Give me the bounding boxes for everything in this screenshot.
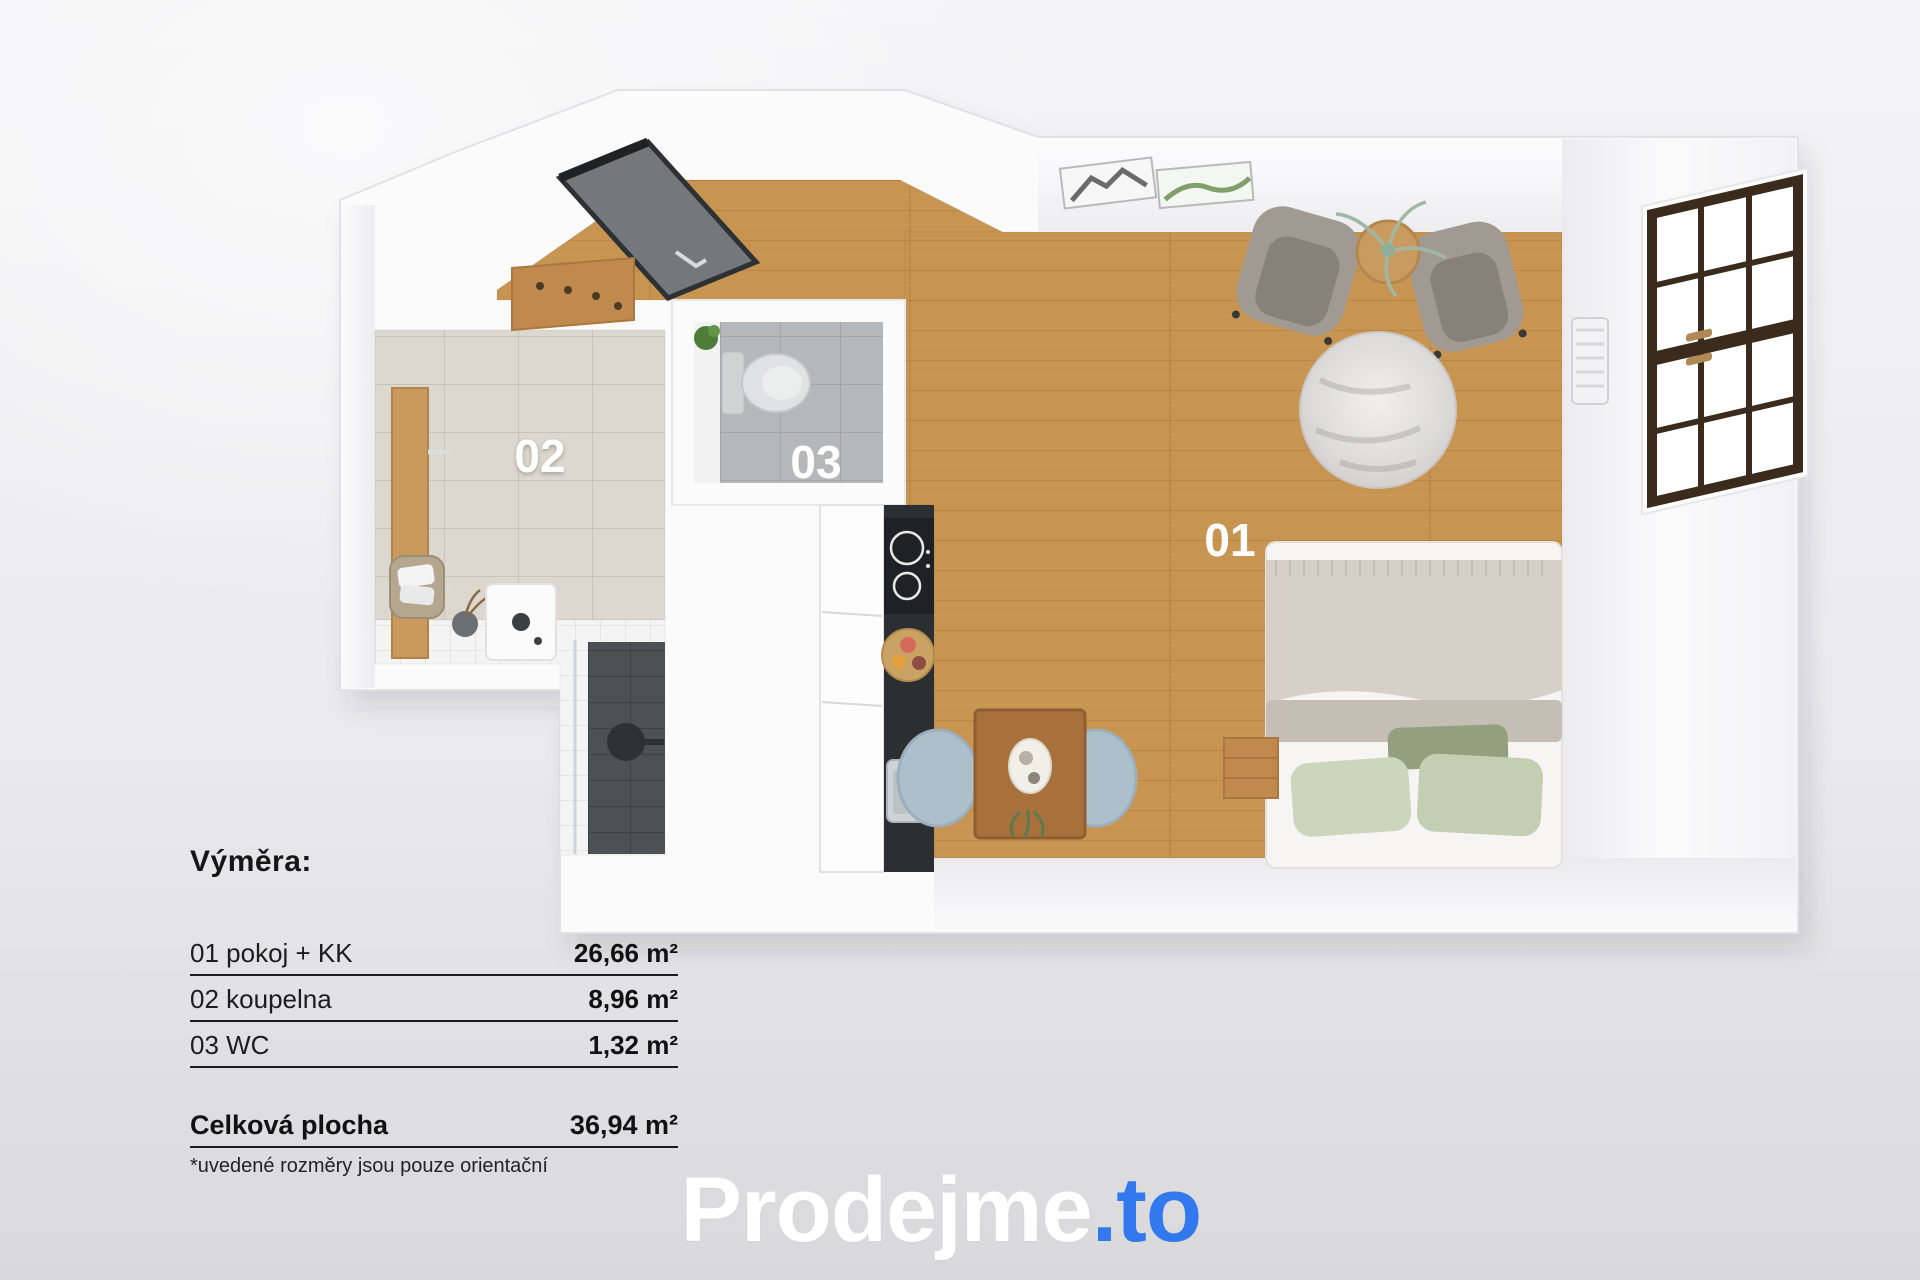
bed-blanket [1266, 560, 1562, 705]
wall-face-left [342, 205, 375, 688]
induction-hob [884, 518, 934, 614]
legend-total-value: 36,94 m² [570, 1110, 678, 1141]
prodejme-to-logo: Prodejme.to [680, 1158, 1201, 1263]
legend-row-label: 01 pokoj + KK [190, 939, 353, 969]
legend-total-label: Celková plocha [190, 1110, 388, 1141]
bedside-crate [1224, 738, 1278, 798]
bathroom-vase [452, 611, 478, 637]
legend-row-value: 8,96 m² [588, 985, 678, 1015]
room-label-03: 03 [790, 436, 841, 488]
pillow-sage-right [1416, 753, 1544, 837]
legend-row-value: 26,66 m² [574, 939, 678, 969]
legend-row-02: 02 koupelna 8,96 m² [190, 985, 678, 1022]
legend-row-label: 02 koupelna [190, 985, 332, 1015]
legend-heading: Výměra: [190, 845, 678, 879]
wall-picture-green [1157, 162, 1254, 208]
logo-text-accent: .to [1092, 1159, 1201, 1261]
room-label-02: 02 [514, 430, 565, 482]
toilet [722, 352, 810, 414]
legend-total-row: Celková plocha 36,94 m² [190, 1110, 678, 1148]
dining-set [898, 710, 1136, 838]
fruit-bowl [882, 629, 934, 681]
area-legend: Výměra: 01 pokoj + KK 26,66 m² 02 koupel… [190, 845, 678, 1178]
pillow-sage-left [1290, 756, 1413, 838]
kitchen-cabinet-doors [820, 505, 884, 872]
bed [1266, 542, 1562, 868]
legend-row-value: 1,32 m² [588, 1031, 678, 1061]
legend-row-label: 03 WC [190, 1031, 269, 1061]
room-03-wc: 03 [672, 300, 905, 505]
room-label-01: 01 [1204, 514, 1255, 566]
room-02-bathroom: 02 [375, 330, 665, 855]
logo-text-primary: Prodejme [680, 1159, 1091, 1261]
plate [1009, 739, 1051, 793]
legend-rows: 01 pokoj + KK 26,66 m² 02 koupelna 8,96 … [190, 939, 678, 1068]
shower-tray [486, 584, 556, 660]
coat-rack-board [512, 258, 634, 330]
floorplan-page: 02 03 [0, 0, 1920, 1280]
window [1642, 168, 1808, 514]
legend-row-03: 03 WC 1,32 m² [190, 1031, 678, 1068]
round-rug [1300, 332, 1456, 488]
laundry-basket [390, 556, 444, 618]
legend-note: *uvedené rozměry jsou pouze orientační [190, 1155, 678, 1178]
chair-left [898, 730, 978, 826]
legend-row-01: 01 pokoj + KK 26,66 m² [190, 939, 678, 976]
radiator [1572, 318, 1608, 404]
